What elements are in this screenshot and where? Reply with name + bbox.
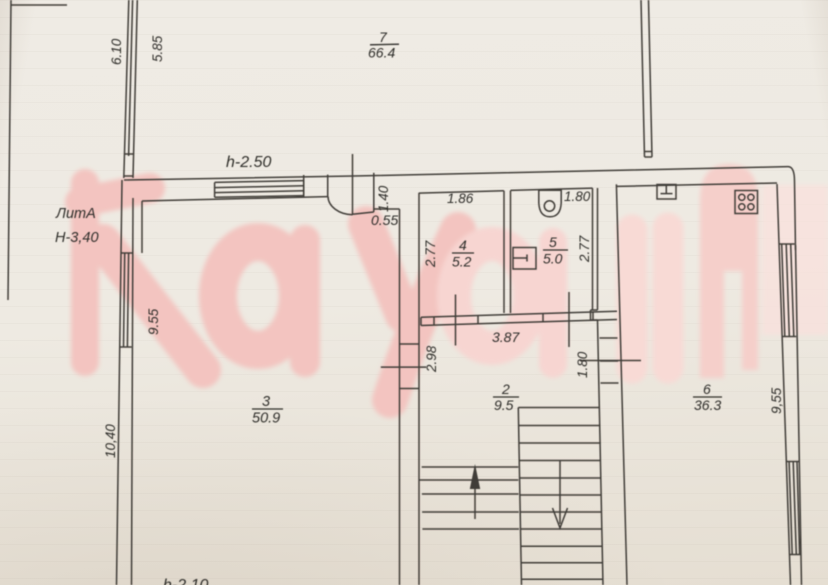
svg-text:10,40: 10,40	[103, 424, 118, 458]
svg-text:5.2: 5.2	[452, 254, 472, 270]
svg-text:9,55: 9,55	[769, 387, 784, 414]
svg-text:9.5: 9.5	[494, 397, 514, 413]
svg-text:50.9: 50.9	[252, 411, 280, 427]
svg-text:9.55: 9.55	[146, 308, 161, 335]
svg-text:1.86: 1.86	[447, 191, 474, 206]
svg-text:1.80: 1.80	[575, 351, 590, 378]
svg-text:36.3: 36.3	[694, 397, 721, 413]
svg-text:7: 7	[379, 29, 388, 45]
svg-text:Н-3,40: Н-3,40	[55, 230, 99, 246]
svg-text:2.77: 2.77	[577, 235, 592, 263]
svg-text:2.77: 2.77	[423, 240, 438, 268]
svg-text:6: 6	[703, 381, 711, 397]
svg-text:1.80: 1.80	[564, 189, 591, 204]
svg-text:2.98: 2.98	[424, 345, 439, 373]
svg-text:1.40: 1.40	[376, 185, 391, 212]
svg-text:0.55: 0.55	[371, 212, 398, 228]
svg-text:2: 2	[501, 381, 510, 397]
svg-text:5: 5	[549, 234, 557, 250]
svg-text:66.4: 66.4	[368, 45, 395, 61]
svg-text:3.87: 3.87	[492, 329, 520, 345]
svg-text:h-2.50: h-2.50	[226, 154, 271, 171]
svg-text:4: 4	[459, 237, 467, 253]
svg-text:5.85: 5.85	[150, 35, 165, 62]
svg-text:6.10: 6.10	[109, 38, 124, 65]
svg-text:h-2.10: h-2.10	[163, 577, 208, 585]
svg-text:5.0: 5.0	[543, 251, 563, 267]
svg-text:3: 3	[262, 394, 270, 410]
svg-text:ЛитА: ЛитА	[55, 206, 96, 222]
